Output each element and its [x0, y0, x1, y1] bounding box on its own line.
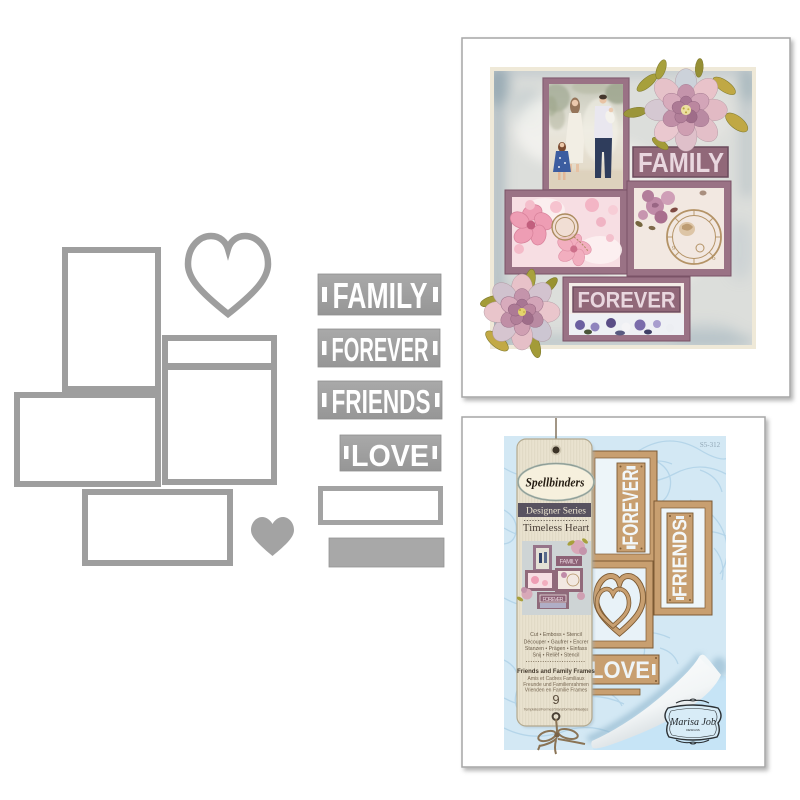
svg-text:9: 9 — [672, 246, 675, 252]
svg-text:Timeless Heart: Timeless Heart — [523, 522, 590, 534]
svg-text:FOREVER: FOREVER — [578, 288, 676, 313]
svg-text:S5-312: S5-312 — [700, 441, 721, 449]
svg-text:FOREVER: FOREVER — [543, 597, 564, 603]
svg-text:9: 9 — [552, 692, 559, 707]
svg-text:Friends and Family Frames: Friends and Family Frames — [517, 669, 595, 675]
svg-text:Snij • Reliëf • Stencil: Snij • Reliëf • Stencil — [533, 653, 580, 659]
svg-text:FOREVER: FOREVER — [618, 469, 643, 545]
svg-text:FAMILY: FAMILY — [333, 275, 428, 316]
svg-text:Spellbinders: Spellbinders — [526, 476, 585, 490]
svg-text:FOREVER: FOREVER — [332, 331, 429, 368]
svg-text:LOVE: LOVE — [351, 438, 429, 473]
svg-text:Designer Series: Designer Series — [526, 507, 586, 517]
svg-text:Stanzen • Prägen • Einfass: Stanzen • Prägen • Einfass — [525, 646, 588, 652]
svg-text:FRIENDS: FRIENDS — [670, 519, 692, 597]
svg-text:6: 6 — [712, 254, 716, 262]
svg-text:Découper • Gaufrer • Encrer: Découper • Gaufrer • Encrer — [524, 640, 589, 646]
svg-text:LOVE: LOVE — [590, 657, 650, 684]
svg-text:FRIENDS: FRIENDS — [332, 383, 431, 420]
svg-text:FAMILY: FAMILY — [560, 560, 579, 566]
svg-text:Marisa Job: Marisa Job — [669, 717, 716, 728]
svg-text:Templates/Formes/Stanzformen/M: Templates/Formes/Stanzformen/Maatjes — [524, 708, 589, 712]
svg-text:Cut • Emboss • Stencil: Cut • Emboss • Stencil — [530, 632, 582, 638]
svg-text:FAMILY: FAMILY — [638, 147, 724, 178]
svg-text:DESIGNS: DESIGNS — [686, 728, 700, 732]
